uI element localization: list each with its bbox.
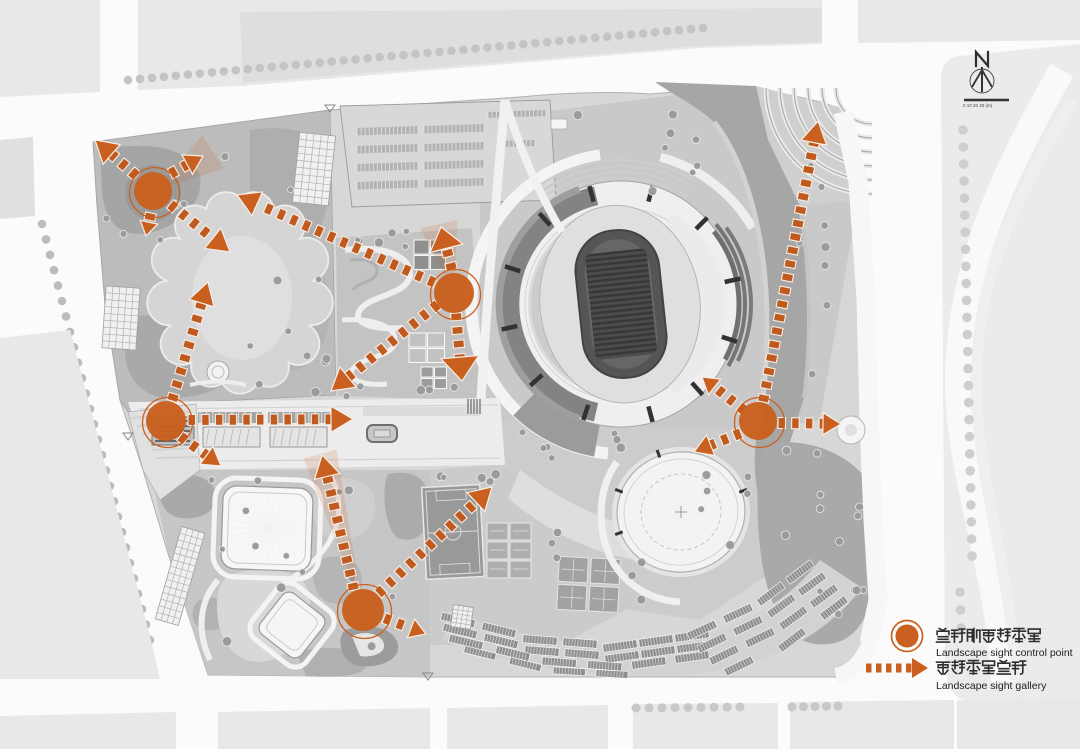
- svg-text:Landscape sight gallery: Landscape sight gallery: [936, 680, 1047, 692]
- svg-text:0 10 20 40 (m): 0 10 20 40 (m): [963, 103, 993, 108]
- svg-text:Landscape sight control point: Landscape sight control point: [936, 647, 1073, 659]
